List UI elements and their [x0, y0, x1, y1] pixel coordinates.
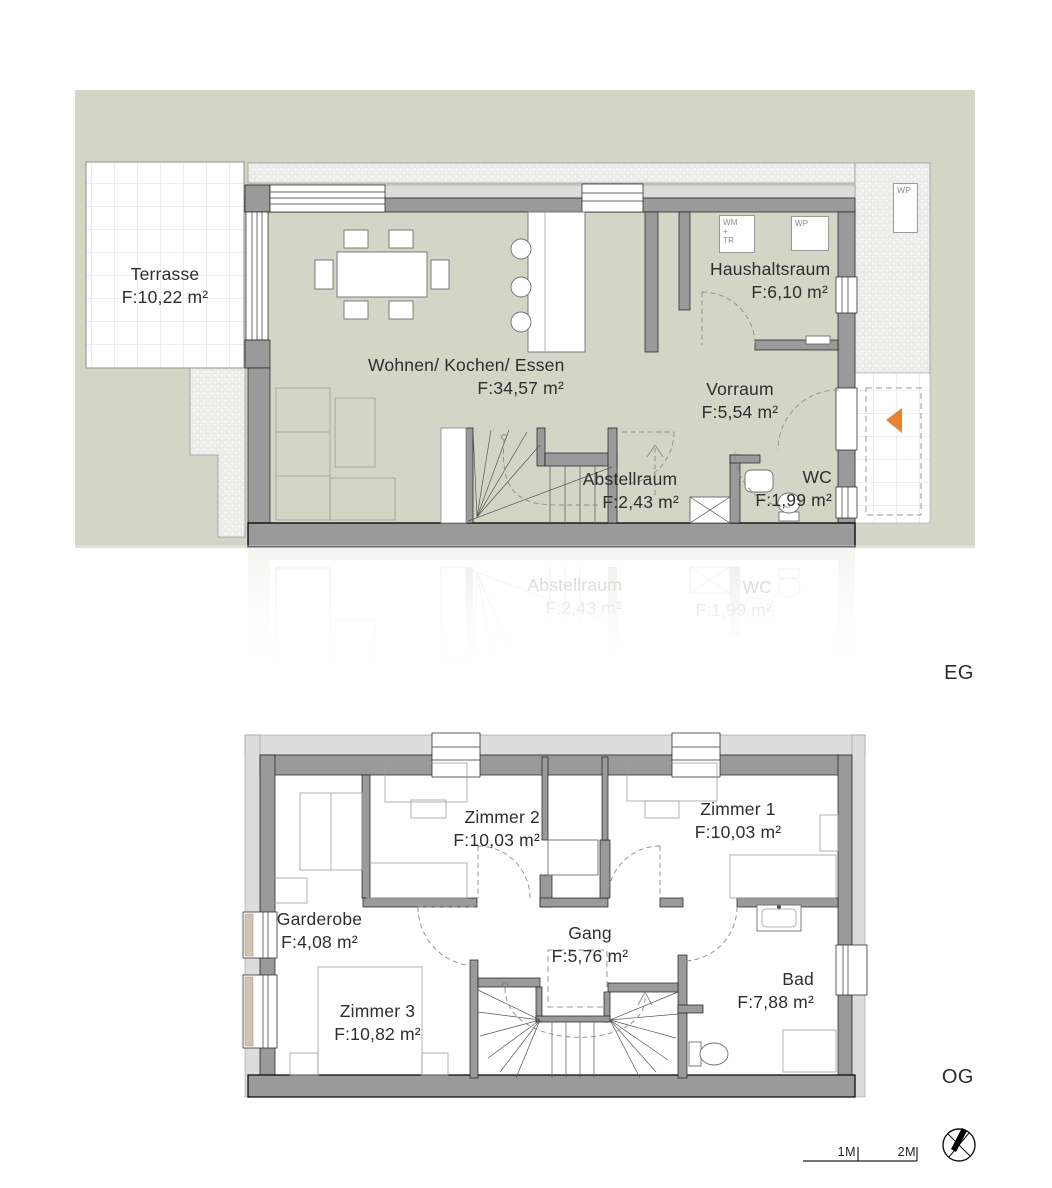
room-name: WC [748, 466, 832, 489]
room-name: Zimmer 1 [688, 798, 788, 821]
room-area: F:6,10 m² [710, 281, 828, 304]
room-name: Garderobe [272, 908, 367, 931]
room-name: Wohnen/ Kochen/ Essen [368, 354, 564, 377]
compass-icon [943, 1128, 975, 1161]
heat-pump-outside-box: WP [893, 183, 918, 233]
room-name: Haushaltsraum [710, 258, 828, 281]
og-stairs [478, 950, 678, 1078]
scale-label-2m: 2M [884, 1145, 916, 1159]
room-area: F:10,22 m² [95, 286, 235, 309]
room-area: F:34,57 m² [368, 377, 564, 400]
room-area: F:5,54 m² [698, 401, 782, 424]
eg-plan [75, 90, 975, 548]
room-label-zimmer2: Zimmer 2 F:10,03 m² [440, 806, 540, 852]
room-name: Terrasse [95, 263, 235, 286]
room-area: F:1,99 m² [748, 489, 832, 512]
room-label-terrasse: Terrasse F:10,22 m² [95, 263, 235, 309]
washer-dryer-box: WM + TR [719, 215, 755, 253]
room-label-zimmer1: Zimmer 1 F:10,03 m² [688, 798, 788, 844]
room-name: Vorraum [698, 378, 782, 401]
room-area: F:10,03 m² [688, 821, 788, 844]
room-label-bad: Bad F:7,88 m² [730, 968, 814, 1014]
room-label-haushaltsraum: Haushaltsraum F:6,10 m² [710, 258, 828, 304]
room-label-wc: WC F:1,99 m² [748, 466, 832, 512]
floor-label-eg: EG [928, 662, 974, 685]
floor-label-og: OG [928, 1066, 974, 1089]
room-name: Gang [545, 922, 635, 945]
scale-label-1m: 1M [824, 1145, 856, 1159]
room-name: Zimmer 3 [330, 1000, 425, 1023]
room-name: Bad [730, 968, 814, 991]
room-label-zimmer3: Zimmer 3 F:10,82 m² [330, 1000, 425, 1046]
room-area: F:4,08 m² [272, 931, 367, 954]
floor-plan-page: Terrasse F:10,22 m² Wohnen/ Kochen/ Esse… [0, 0, 1052, 1188]
fade-overlay [75, 545, 975, 697]
room-area: F:5,76 m² [545, 945, 635, 968]
room-label-vorraum: Vorraum F:5,54 m² [698, 378, 782, 424]
room-label-wohnen: Wohnen/ Kochen/ Essen F:34,57 m² [368, 354, 564, 400]
room-area: F:10,82 m² [330, 1023, 425, 1046]
room-label-garderobe: Garderobe F:4,08 m² [272, 908, 367, 954]
room-area: F:2,43 m² [581, 491, 679, 514]
room-label-abstellraum: Abstellraum F:2,43 m² [581, 468, 679, 514]
room-label-gang: Gang F:5,76 m² [545, 922, 635, 968]
room-name: Abstellraum [581, 468, 679, 491]
room-area: F:10,03 m² [440, 829, 540, 852]
room-area: F:7,88 m² [730, 991, 814, 1014]
room-name: Zimmer 2 [440, 806, 540, 829]
shaft-symbol [690, 497, 730, 523]
heat-pump-inside-box: WP [791, 216, 829, 251]
